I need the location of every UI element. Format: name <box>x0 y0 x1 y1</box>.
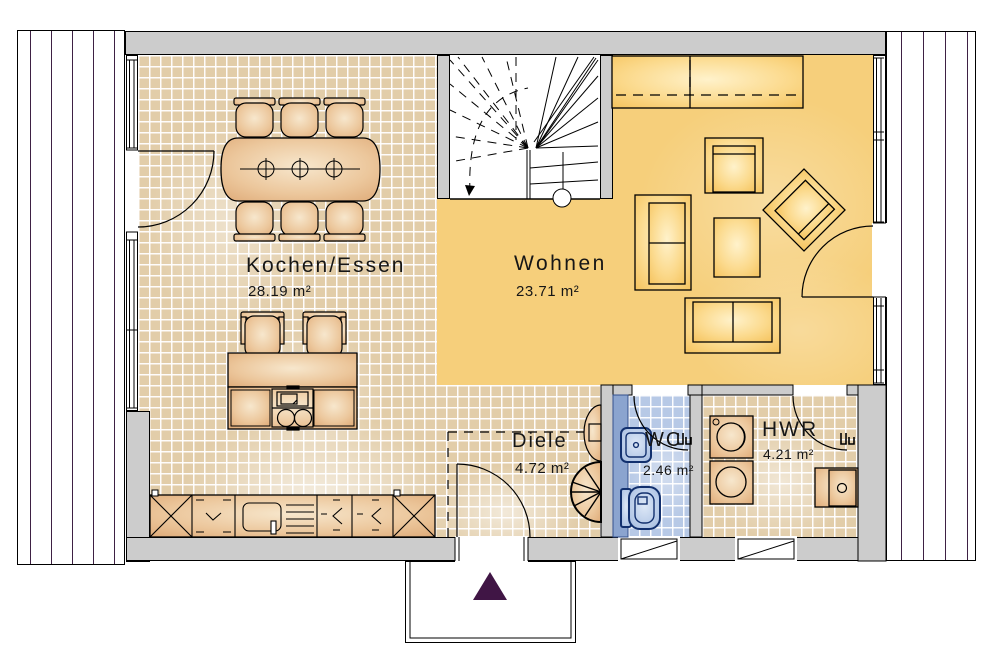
entrance-arrow <box>473 572 507 600</box>
kitchen-counter <box>150 490 435 537</box>
dining-set <box>221 98 380 241</box>
room-label-hwr: HWR <box>762 418 818 442</box>
sofa-left <box>635 195 691 290</box>
sideboard <box>612 56 803 108</box>
room-label-wohnen: Wohnen <box>514 252 607 276</box>
window-left-1 <box>127 60 137 148</box>
utility-sink <box>815 468 858 507</box>
porch-detail <box>410 561 571 638</box>
console-table <box>584 405 601 461</box>
window-right-2 <box>874 298 884 383</box>
coat-rack <box>571 462 601 522</box>
room-area-kochen: 28.19 m² <box>248 283 311 300</box>
armchair <box>705 138 763 193</box>
kitchen-terrace-door <box>138 151 214 227</box>
stair-handrail <box>538 60 598 146</box>
plan-linework <box>0 0 1000 662</box>
room-label-kochen: Kochen/Essen <box>246 254 405 278</box>
room-area-wc: 2.46 m² <box>643 462 694 478</box>
window-right-1 <box>874 58 884 222</box>
hwr-door-jamb <box>841 433 854 444</box>
door-gap-kitchen <box>125 150 139 232</box>
floor-plan: Kochen/Essen 28.19 m² Wohnen 23.71 m² Di… <box>0 0 1000 662</box>
wall-hwr-right <box>858 385 886 561</box>
staircase <box>450 57 600 207</box>
living-furniture <box>612 56 845 353</box>
wall-diele-wc <box>601 385 613 537</box>
bar-stool <box>241 312 346 357</box>
room-area-hwr: 4.21 m² <box>763 446 814 462</box>
room-label-diele: Diele <box>512 430 568 453</box>
coffee-table <box>714 218 760 277</box>
toilet <box>621 487 660 529</box>
room-area-diele: 4.72 m² <box>515 460 569 477</box>
bar-counter <box>228 353 357 387</box>
room-label-wc: WC <box>645 429 682 452</box>
window-hwr-bottom <box>735 536 797 562</box>
room-area-wohnen: 23.71 m² <box>516 283 579 300</box>
window-wc-bottom <box>618 536 680 562</box>
stair-direction-arrow <box>465 185 475 196</box>
sofa-bottom <box>685 298 780 353</box>
stair-newel-post <box>553 189 571 207</box>
window-left-2 <box>127 240 137 408</box>
kitchen-island <box>228 353 357 430</box>
front-door-gap <box>455 536 528 562</box>
dryer <box>710 461 753 504</box>
washing-machine <box>710 416 753 458</box>
door-gap-living <box>872 223 887 297</box>
